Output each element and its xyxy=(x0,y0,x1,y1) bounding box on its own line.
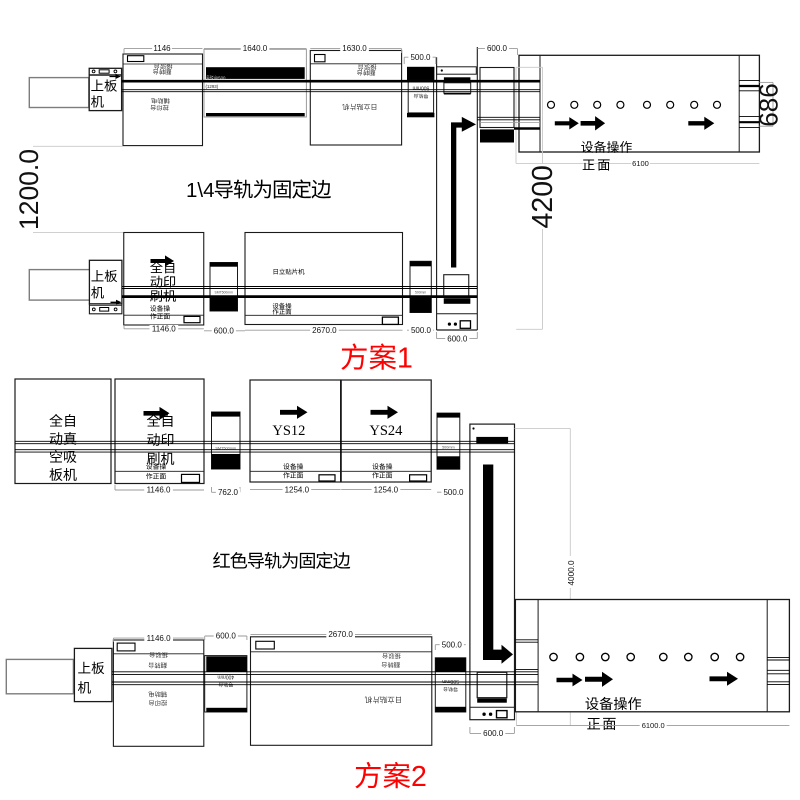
svg-text:4000.0: 4000.0 xyxy=(567,560,576,585)
svg-text:500.0: 500.0 xyxy=(411,326,432,335)
svg-text:600.0: 600.0 xyxy=(447,334,468,343)
svg-text:600.0: 600.0 xyxy=(216,632,237,641)
svg-text:1146.0: 1146.0 xyxy=(147,634,171,643)
svg-text:1640.0: 1640.0 xyxy=(243,44,268,53)
svg-text:6100: 6100 xyxy=(632,159,649,168)
svg-text:500mm: 500mm xyxy=(415,290,426,294)
svg-text:500.0: 500.0 xyxy=(410,53,431,62)
svg-text:1254.0: 1254.0 xyxy=(285,485,310,494)
svg-text:1146.0: 1146.0 xyxy=(152,325,176,334)
svg-text:1200.0: 1200.0 xyxy=(14,149,44,230)
svg-text:500mm: 500mm xyxy=(442,445,455,449)
svg-text:1\4: 1\4 xyxy=(186,179,215,202)
svg-text:500.0: 500.0 xyxy=(442,640,463,649)
svg-text:2670.0: 2670.0 xyxy=(328,630,353,639)
svg-text:500.0: 500.0 xyxy=(443,488,464,497)
svg-text:2: 2 xyxy=(411,761,427,793)
svg-text:YS12: YS12 xyxy=(272,423,305,439)
svg-text:SMT500mm: SMT500mm xyxy=(214,291,233,295)
svg-text:1146: 1146 xyxy=(153,44,171,53)
svg-text:686: 686 xyxy=(754,83,784,126)
svg-text:2670.0: 2670.0 xyxy=(312,326,337,335)
svg-text:1630.0: 1630.0 xyxy=(342,44,367,53)
svg-text:1146.0: 1146.0 xyxy=(147,486,171,495)
svg-text:762.0: 762.0 xyxy=(218,488,239,497)
svg-text:4200: 4200 xyxy=(527,165,559,228)
svg-text:1254.0: 1254.0 xyxy=(374,485,399,494)
svg-text:500mm: 500mm xyxy=(442,678,459,684)
svg-text:600.0: 600.0 xyxy=(483,729,504,738)
svg-text:600.0: 600.0 xyxy=(214,327,235,336)
svg-text:1: 1 xyxy=(397,343,413,375)
svg-text:(1293): (1293) xyxy=(206,84,219,89)
svg-text:6100.0: 6100.0 xyxy=(642,721,665,730)
svg-text:600.0: 600.0 xyxy=(487,44,508,53)
svg-text:YS24: YS24 xyxy=(369,423,403,439)
